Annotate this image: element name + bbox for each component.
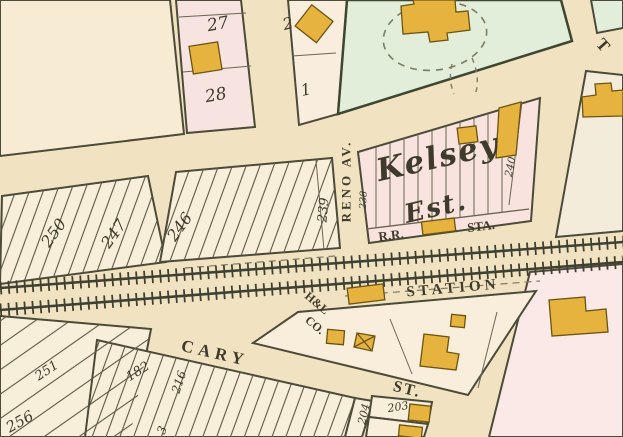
rr-label: R.R. — [378, 227, 405, 243]
plat-map-canvas[interactable]: 27 28 2 1 RENO AV. 239 238 Kelsey Est. 2… — [0, 0, 623, 437]
building-below-203 — [398, 425, 422, 437]
block-green-wedge-top-right — [591, 0, 623, 33]
lot-203-label: 203 — [387, 400, 409, 414]
map-drawing — [0, 0, 623, 437]
building-wedge-small — [450, 314, 465, 327]
lot-239-label: 239 — [316, 197, 331, 223]
reno-av-street-label: RENO AV. — [340, 140, 353, 223]
block-top-left — [0, 0, 184, 156]
lot-238-label: 238 — [359, 191, 369, 210]
building-lot-27 — [189, 42, 222, 74]
building-hl-co-small — [326, 329, 344, 344]
lot-28-label: 28 — [204, 86, 228, 106]
lot-27-label: 27 — [206, 15, 230, 35]
building-lot-203 — [408, 404, 431, 422]
block-bottom-right — [489, 264, 623, 437]
building-station — [347, 284, 385, 304]
sta-label: STA. — [467, 218, 496, 234]
